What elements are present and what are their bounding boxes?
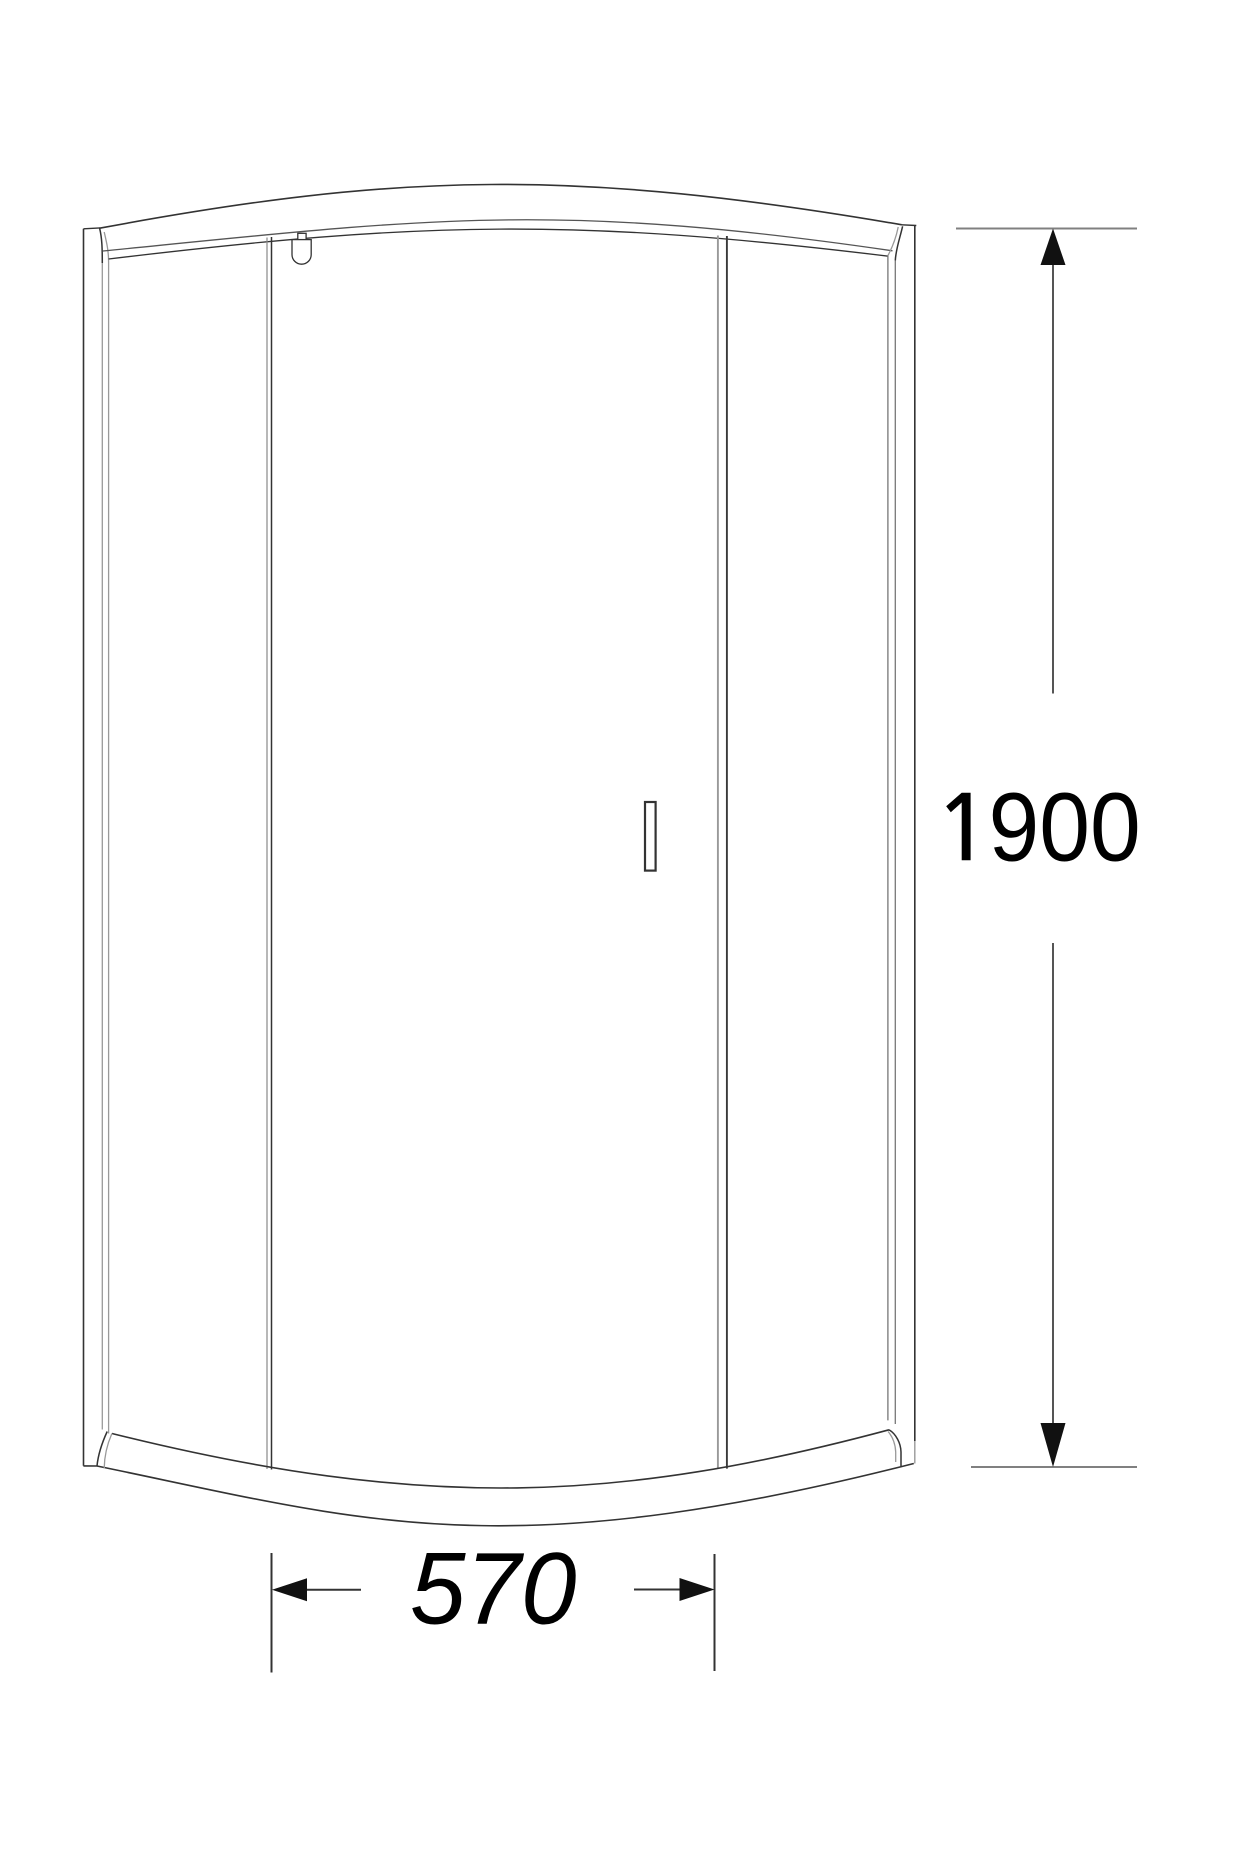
- svg-text:570: 570: [410, 1531, 577, 1645]
- svg-text:900: 900: [989, 772, 1141, 881]
